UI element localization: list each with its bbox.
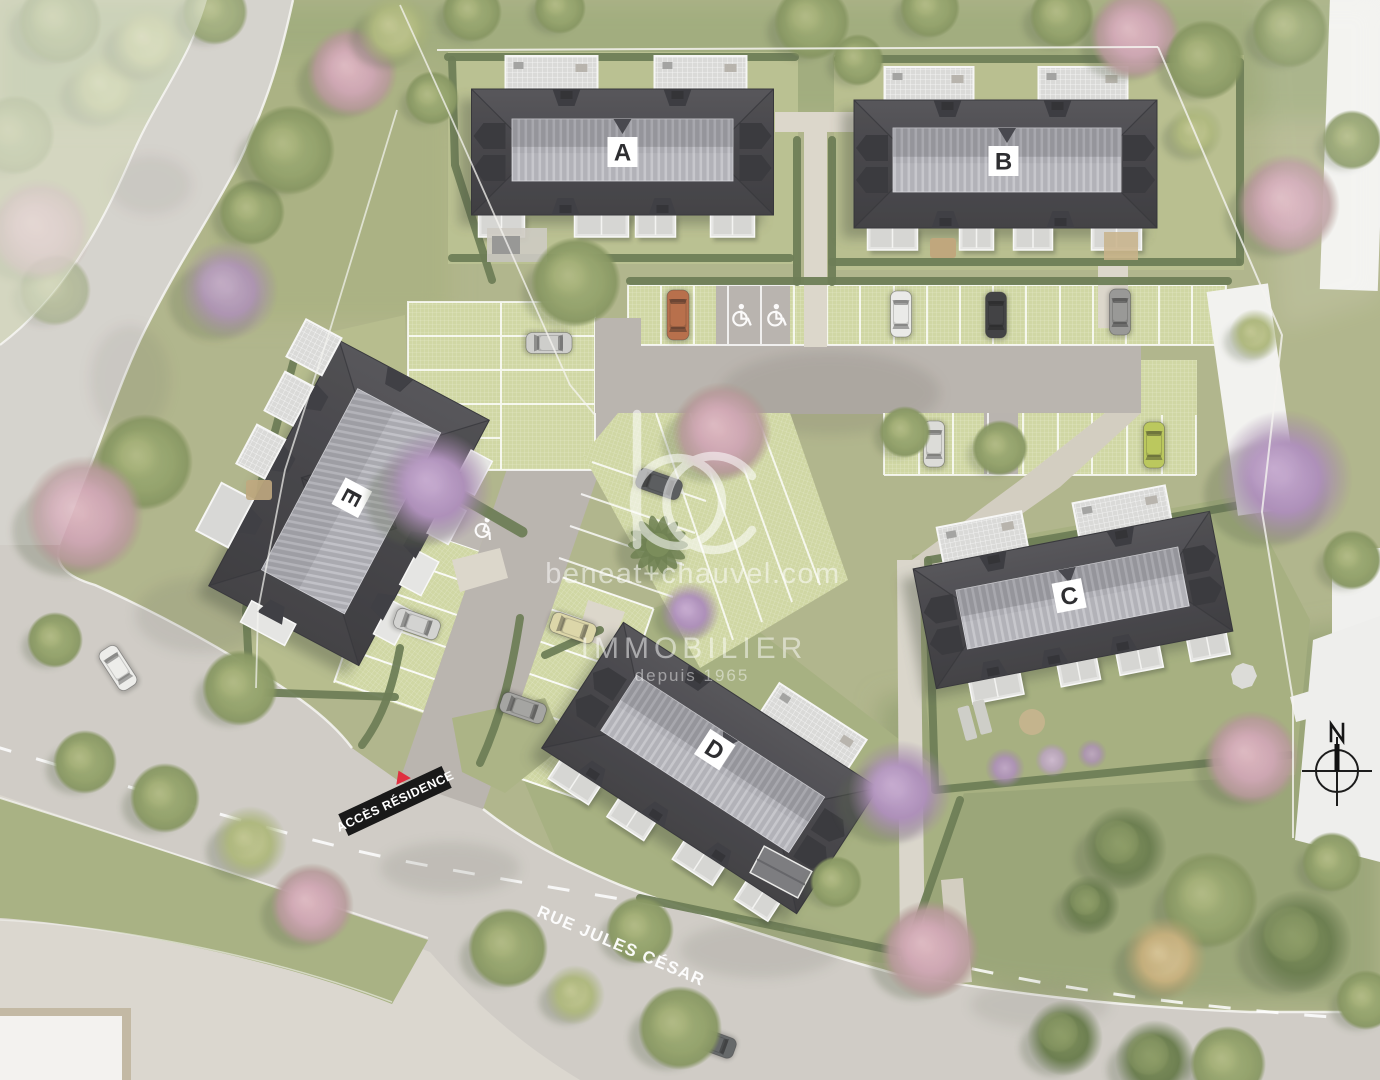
svg-text:depuis 1965: depuis 1965 — [635, 666, 750, 685]
svg-text:beneat+chauvel.com: beneat+chauvel.com — [545, 558, 840, 590]
svg-text:IMMOBILIER: IMMOBILIER — [581, 632, 808, 665]
